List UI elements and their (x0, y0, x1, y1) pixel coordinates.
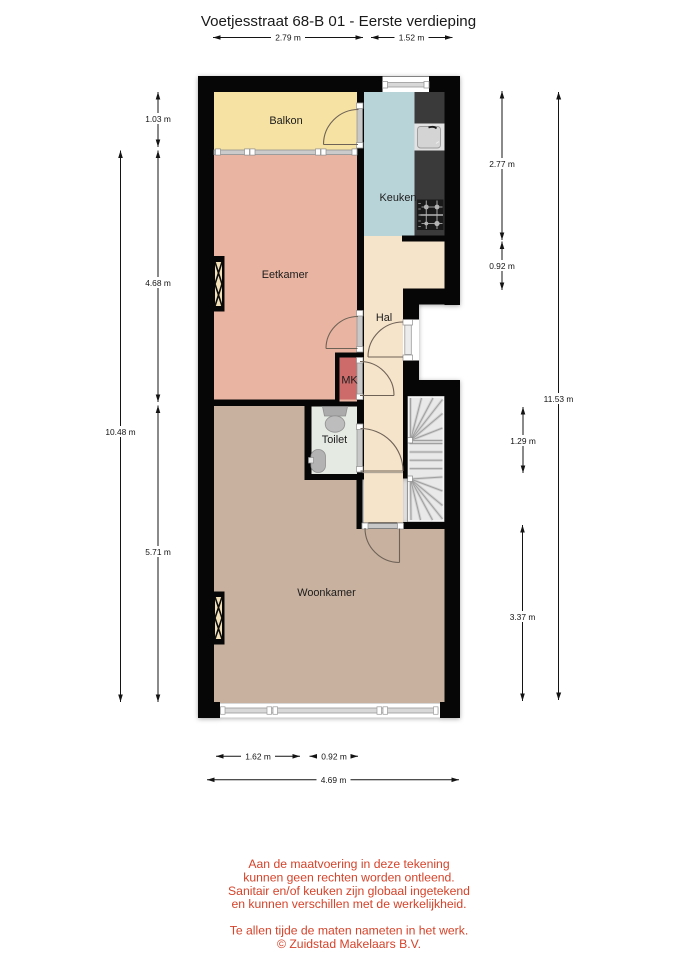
svg-text:MK: MK (341, 375, 358, 387)
svg-text:3.37 m: 3.37 m (510, 612, 536, 622)
svg-text:1.29 m: 1.29 m (510, 436, 536, 446)
svg-text:0.92 m: 0.92 m (489, 261, 515, 271)
svg-text:Keuken: Keuken (380, 192, 417, 204)
svg-text:5.71 m: 5.71 m (145, 547, 171, 557)
svg-text:1.52 m: 1.52 m (399, 33, 425, 43)
svg-text:2.77 m: 2.77 m (489, 159, 515, 169)
svg-text:1.03 m: 1.03 m (145, 114, 171, 124)
svg-text:kunnen geen rechten worden ont: kunnen geen rechten worden ontleend. (243, 870, 454, 884)
svg-text:0.92 m: 0.92 m (321, 751, 347, 761)
svg-text:Sanitair en/of keuken zijn glo: Sanitair en/of keuken zijn globaal inget… (228, 884, 470, 898)
svg-text:1.62 m: 1.62 m (245, 751, 271, 761)
svg-text:© Zuidstad Makelaars B.V.: © Zuidstad Makelaars B.V. (277, 937, 421, 951)
svg-text:Aan de maatvoering in deze tek: Aan de maatvoering in deze tekening (248, 857, 449, 871)
svg-text:Voetjesstraat 68-B 01 - Eerste: Voetjesstraat 68-B 01 - Eerste verdiepin… (201, 13, 476, 30)
svg-text:4.69 m: 4.69 m (321, 775, 347, 785)
svg-text:Eetkamer: Eetkamer (262, 269, 309, 281)
svg-text:10.48 m: 10.48 m (105, 427, 135, 437)
svg-text:en kunnen verschillen met de w: en kunnen verschillen met de werkelijkhe… (231, 897, 466, 911)
svg-text:Hal: Hal (376, 312, 392, 324)
svg-text:Te allen tijde de maten namete: Te allen tijde de maten nameten in het w… (230, 924, 468, 938)
svg-text:Woonkamer: Woonkamer (297, 587, 356, 599)
svg-text:Balkon: Balkon (269, 115, 302, 127)
svg-text:11.53 m: 11.53 m (544, 394, 574, 404)
svg-text:2.79 m: 2.79 m (275, 33, 301, 43)
svg-text:Toilet: Toilet (322, 434, 347, 446)
svg-text:4.68 m: 4.68 m (145, 278, 171, 288)
